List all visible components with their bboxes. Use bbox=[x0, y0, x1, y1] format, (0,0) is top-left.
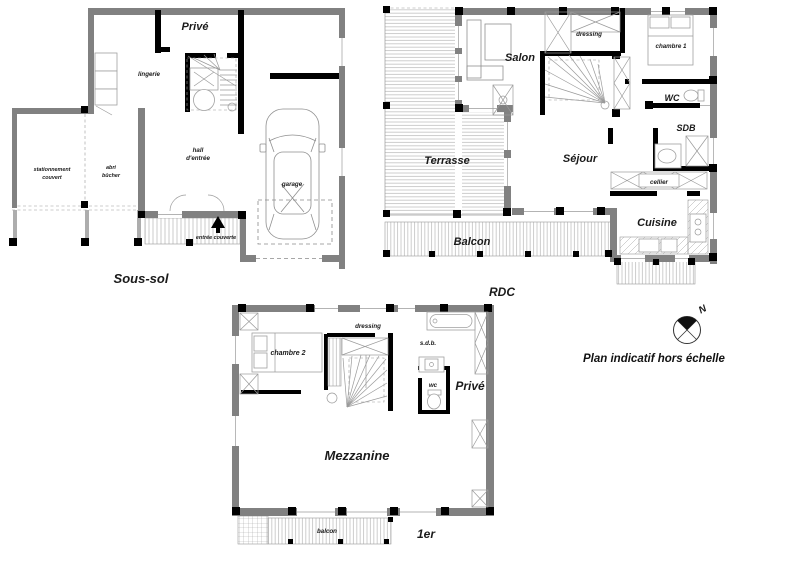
room-label-terrasse: Terrasse bbox=[424, 155, 469, 167]
room-label-hall-2: d'entrée bbox=[186, 155, 210, 162]
room-label-sdb: s.d.b. bbox=[420, 340, 436, 347]
car-icon bbox=[260, 109, 325, 239]
balcon-decking bbox=[238, 516, 391, 544]
shower-icon bbox=[686, 136, 708, 166]
floor-plan-sous-sol: Privé lingerie hall d'entrée stationneme… bbox=[8, 2, 353, 290]
room-label-garage: garage bbox=[281, 181, 303, 188]
room-label-wc: wc bbox=[429, 382, 438, 389]
toilet-icon bbox=[684, 90, 704, 101]
room-label-cuisine: Cuisine bbox=[637, 217, 677, 229]
room-label-mezzanine: Mezzanine bbox=[324, 448, 389, 463]
room-label-stationnement-2: couvert bbox=[42, 175, 62, 181]
toilet-icon bbox=[428, 390, 442, 409]
room-label-abri-1: abri bbox=[106, 165, 116, 171]
room-label-balcon: balcon bbox=[317, 528, 337, 535]
scale-note: Plan indicatif hors échelle bbox=[583, 353, 725, 365]
room-label-chambre1: chambre 1 bbox=[656, 43, 688, 50]
north-compass-icon: N bbox=[657, 296, 727, 358]
room-label-chambre2: chambre 2 bbox=[270, 350, 305, 357]
room-label-sejour: Séjour bbox=[563, 153, 598, 165]
floor-plans-canvas: Privé lingerie hall d'entrée stationneme… bbox=[0, 0, 800, 564]
floor-plan-premier: chambre 2 dressing s.d.b. wc Privé Mezza… bbox=[230, 298, 505, 556]
room-label-cellier: cellier bbox=[650, 179, 668, 186]
floor-title-sous-sol: Sous-sol bbox=[114, 271, 169, 286]
sous-sol-interior-walls bbox=[138, 10, 339, 219]
door-swing-arcs bbox=[170, 195, 224, 211]
staircase-icon bbox=[187, 54, 237, 111]
chambre1-door-gap bbox=[629, 79, 642, 84]
parking-outline bbox=[258, 200, 332, 244]
sink-icon bbox=[419, 357, 444, 372]
north-label: N bbox=[697, 303, 709, 316]
room-label-balcon: Balcon bbox=[454, 236, 491, 248]
floor-plan-rdc: Salon Terrasse Séjour dressing chambre 1… bbox=[383, 2, 723, 298]
floor-title-premier: 1er bbox=[417, 527, 436, 541]
floor-title-rdc: RDC bbox=[489, 285, 515, 298]
stair-closet-strip bbox=[328, 338, 341, 386]
room-label-hall-1: hall bbox=[193, 147, 204, 154]
bathtub-icon bbox=[427, 312, 475, 330]
room-label-dressing: dressing bbox=[355, 323, 381, 330]
room-label-entree-couverte: entrée couverte bbox=[196, 235, 236, 241]
sofa-icon bbox=[467, 20, 511, 80]
laundry-cabinets-icon bbox=[95, 53, 117, 115]
room-label-lingerie: lingerie bbox=[138, 71, 161, 78]
room-label-sdb: SDB bbox=[676, 123, 696, 133]
room-label-prive: Privé bbox=[182, 21, 209, 33]
bed-icon bbox=[648, 15, 693, 65]
room-label-wc: WC bbox=[665, 93, 680, 103]
room-label-prive: Privé bbox=[455, 379, 485, 393]
room-label-stationnement-1: stationnement bbox=[34, 167, 71, 173]
room-label-salon: Salon bbox=[505, 52, 535, 64]
carport-open-edge bbox=[12, 114, 141, 238]
room-label-abri-2: bûcher bbox=[102, 173, 121, 179]
room-label-dressing: dressing bbox=[576, 31, 602, 38]
staircase-icon bbox=[545, 55, 609, 109]
sink-icon bbox=[655, 144, 681, 168]
